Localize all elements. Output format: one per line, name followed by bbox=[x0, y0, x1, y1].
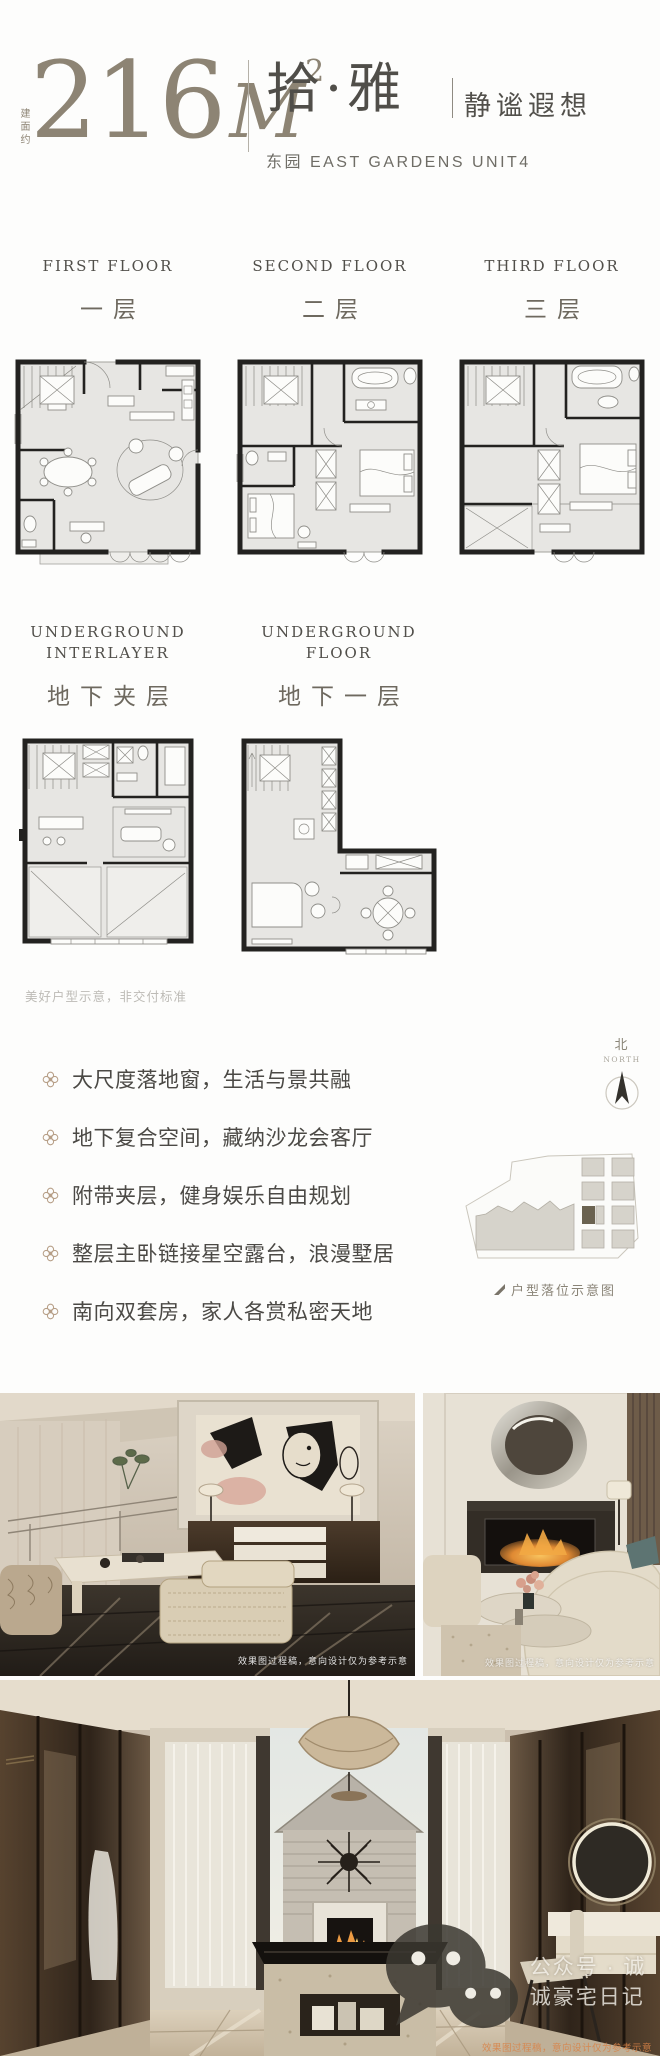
flag-icon bbox=[494, 1284, 505, 1295]
wechat-account-text: 公众号 · 诚诚豪宅日记 bbox=[530, 1951, 650, 2011]
header-divider bbox=[248, 60, 249, 152]
floor-label-en: UNDERGROUND FLOOR bbox=[259, 622, 419, 664]
site-plan-caption-text: 户型落位示意图 bbox=[511, 1280, 616, 1299]
compass-label-en: NORTH bbox=[598, 1055, 646, 1064]
area-number: 216 bbox=[30, 39, 223, 162]
feature-item: 附带夹层，健身娱乐自由规划 bbox=[42, 1180, 395, 1210]
floor-label-en: UNDERGROUND INTERLAYER bbox=[28, 622, 188, 664]
tagline-divider bbox=[452, 78, 453, 118]
rosette-icon bbox=[42, 1187, 59, 1204]
unit-tagline: 静谧遐想 bbox=[464, 84, 592, 123]
third-floor-plan bbox=[446, 354, 658, 574]
floor-label-cn: 地下夹层 bbox=[2, 677, 214, 711]
floor-label-cn: 一层 bbox=[2, 290, 214, 324]
photo-process-watermark: 效果图过程稿，意向设计仅为参考示意 bbox=[238, 1654, 408, 1667]
feature-text: 大尺度落地窗，生活与景共融 bbox=[72, 1064, 352, 1094]
feature-item: 整层主卧链接星空露台，浪漫墅居 bbox=[42, 1238, 395, 1268]
feature-text: 地下复合空间，藏纳沙龙会客厅 bbox=[72, 1122, 373, 1152]
first-floor-plan bbox=[2, 354, 214, 574]
photo-process-watermark: 效果图过程稿，意向设计仅为参考示意 bbox=[482, 2040, 652, 2054]
floor-label-cn: 地下一层 bbox=[224, 677, 454, 711]
footer-watermark: 公众号 · 诚诚豪宅日记 bbox=[381, 1921, 650, 2041]
photo-dressing-room: ) bbox=[0, 1680, 660, 2056]
feature-text: 整层主卧链接星空露台，浪漫墅居 bbox=[72, 1238, 395, 1268]
photo-living-room: 效果图过程稿，意向设计仅为参考示意 bbox=[0, 1393, 415, 1676]
compass: 北 NORTH bbox=[598, 1034, 646, 1117]
floor-label-en: THIRD FLOOR bbox=[472, 256, 632, 277]
site-plan bbox=[452, 1146, 644, 1275]
rosette-icon bbox=[42, 1071, 59, 1088]
floor-section-underground-interlayer: UNDERGROUND INTERLAYER 地下夹层 bbox=[2, 622, 214, 958]
plan-disclaimer: 美好户型示意，非交付标准 bbox=[25, 986, 187, 1005]
floor-label-en: SECOND FLOOR bbox=[250, 256, 410, 277]
highlighted-unit bbox=[582, 1206, 595, 1224]
poster-page: 建面约 216M2 拾·雅 静谧遐想 东园 EAST GARDENS UNIT4… bbox=[0, 0, 660, 2056]
feature-text: 南向双套房，家人各赏私密天地 bbox=[72, 1296, 373, 1326]
wechat-icon bbox=[381, 1921, 520, 2041]
compass-label-cn: 北 bbox=[598, 1034, 646, 1053]
rosette-icon bbox=[42, 1129, 59, 1146]
underground-floor-plan bbox=[224, 733, 454, 962]
north-arrow-icon bbox=[600, 1068, 644, 1112]
floor-section-second: SECOND FLOOR 二层 bbox=[224, 256, 436, 574]
area-prefix-vertical: 建面约 bbox=[16, 108, 31, 147]
floor-label-cn: 三层 bbox=[446, 290, 658, 324]
unit-name: 拾·雅 bbox=[266, 58, 406, 120]
floor-section-underground-floor: UNDERGROUND FLOOR 地下一层 bbox=[224, 622, 454, 962]
feature-item: 大尺度落地窗，生活与景共融 bbox=[42, 1064, 395, 1094]
photo-fireplace-lounge: 效果图过程稿，意向设计仅为参考示意 bbox=[423, 1393, 660, 1676]
feature-text: 附带夹层，健身娱乐自由规划 bbox=[72, 1180, 352, 1210]
photo-process-watermark: 效果图过程稿，意向设计仅为参考示意 bbox=[485, 1656, 655, 1669]
rosette-icon bbox=[42, 1245, 59, 1262]
feature-list: 大尺度落地窗，生活与景共融 地下复合空间，藏纳沙龙会客厅 附带夹层，健身娱乐自由… bbox=[42, 1064, 395, 1354]
underground-interlayer-plan bbox=[2, 733, 214, 958]
second-floor-plan bbox=[224, 354, 436, 574]
site-plan-caption: 户型落位示意图 bbox=[494, 1280, 616, 1299]
floor-label-cn: 二层 bbox=[224, 290, 436, 324]
floor-section-first: FIRST FLOOR 一层 bbox=[2, 256, 214, 574]
feature-item: 南向双套房，家人各赏私密天地 bbox=[42, 1296, 395, 1326]
floor-section-third: THIRD FLOOR 三层 bbox=[446, 256, 658, 574]
rosette-icon bbox=[42, 1303, 59, 1320]
unit-subtitle: 东园 EAST GARDENS UNIT4 bbox=[266, 148, 531, 172]
feature-item: 地下复合空间，藏纳沙龙会客厅 bbox=[42, 1122, 395, 1152]
floor-label-en: FIRST FLOOR bbox=[28, 256, 188, 277]
